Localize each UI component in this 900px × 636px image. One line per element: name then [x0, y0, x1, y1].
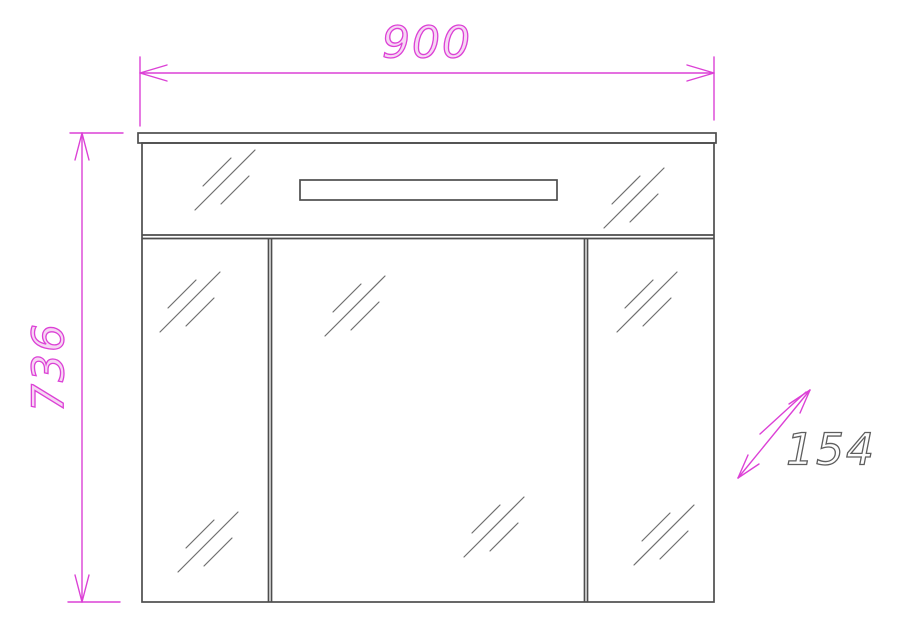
cabinet-drawing — [0, 0, 900, 636]
drawing-canvas: 900 736 154 — [0, 0, 900, 636]
glass-hatch-icon — [178, 512, 238, 572]
cabinet-cornice — [138, 133, 716, 143]
glass-hatch-icon — [604, 168, 664, 228]
glass-hatch-icon — [634, 505, 694, 565]
mirror-glass-hatches — [160, 150, 694, 572]
depth-dimension-label: 154 — [786, 425, 876, 476]
cabinet-body — [142, 143, 714, 602]
dimension-lines — [68, 57, 810, 602]
height-dimension-line — [68, 133, 123, 602]
width-dimension-label: 900 — [382, 18, 472, 69]
height-dimension-label: 736 — [24, 322, 75, 412]
glass-hatch-icon — [325, 276, 385, 336]
glass-hatch-icon — [160, 272, 220, 332]
glass-hatch-icon — [464, 497, 524, 557]
light-fixture — [300, 180, 557, 200]
glass-hatch-icon — [617, 272, 677, 332]
glass-hatch-icon — [195, 150, 255, 210]
